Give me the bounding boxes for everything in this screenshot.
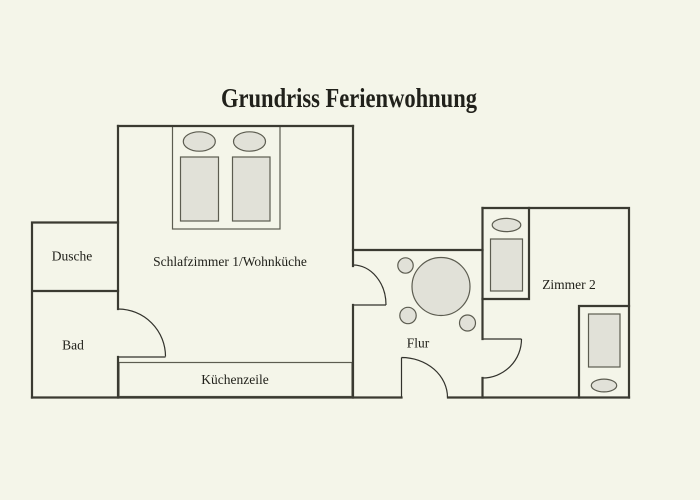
svg-text:Bad: Bad	[62, 338, 84, 353]
svg-text:Küchenzeile: Küchenzeile	[201, 372, 268, 387]
svg-text:Zimmer 2: Zimmer 2	[542, 277, 596, 292]
svg-text:Flur: Flur	[407, 336, 430, 351]
svg-text:Schlafzimmer 1/Wohnküche: Schlafzimmer 1/Wohnküche	[153, 254, 307, 269]
svg-text:Grundriss Ferienwohnung: Grundriss Ferienwohnung	[221, 83, 477, 113]
svg-text:Dusche: Dusche	[52, 249, 93, 264]
